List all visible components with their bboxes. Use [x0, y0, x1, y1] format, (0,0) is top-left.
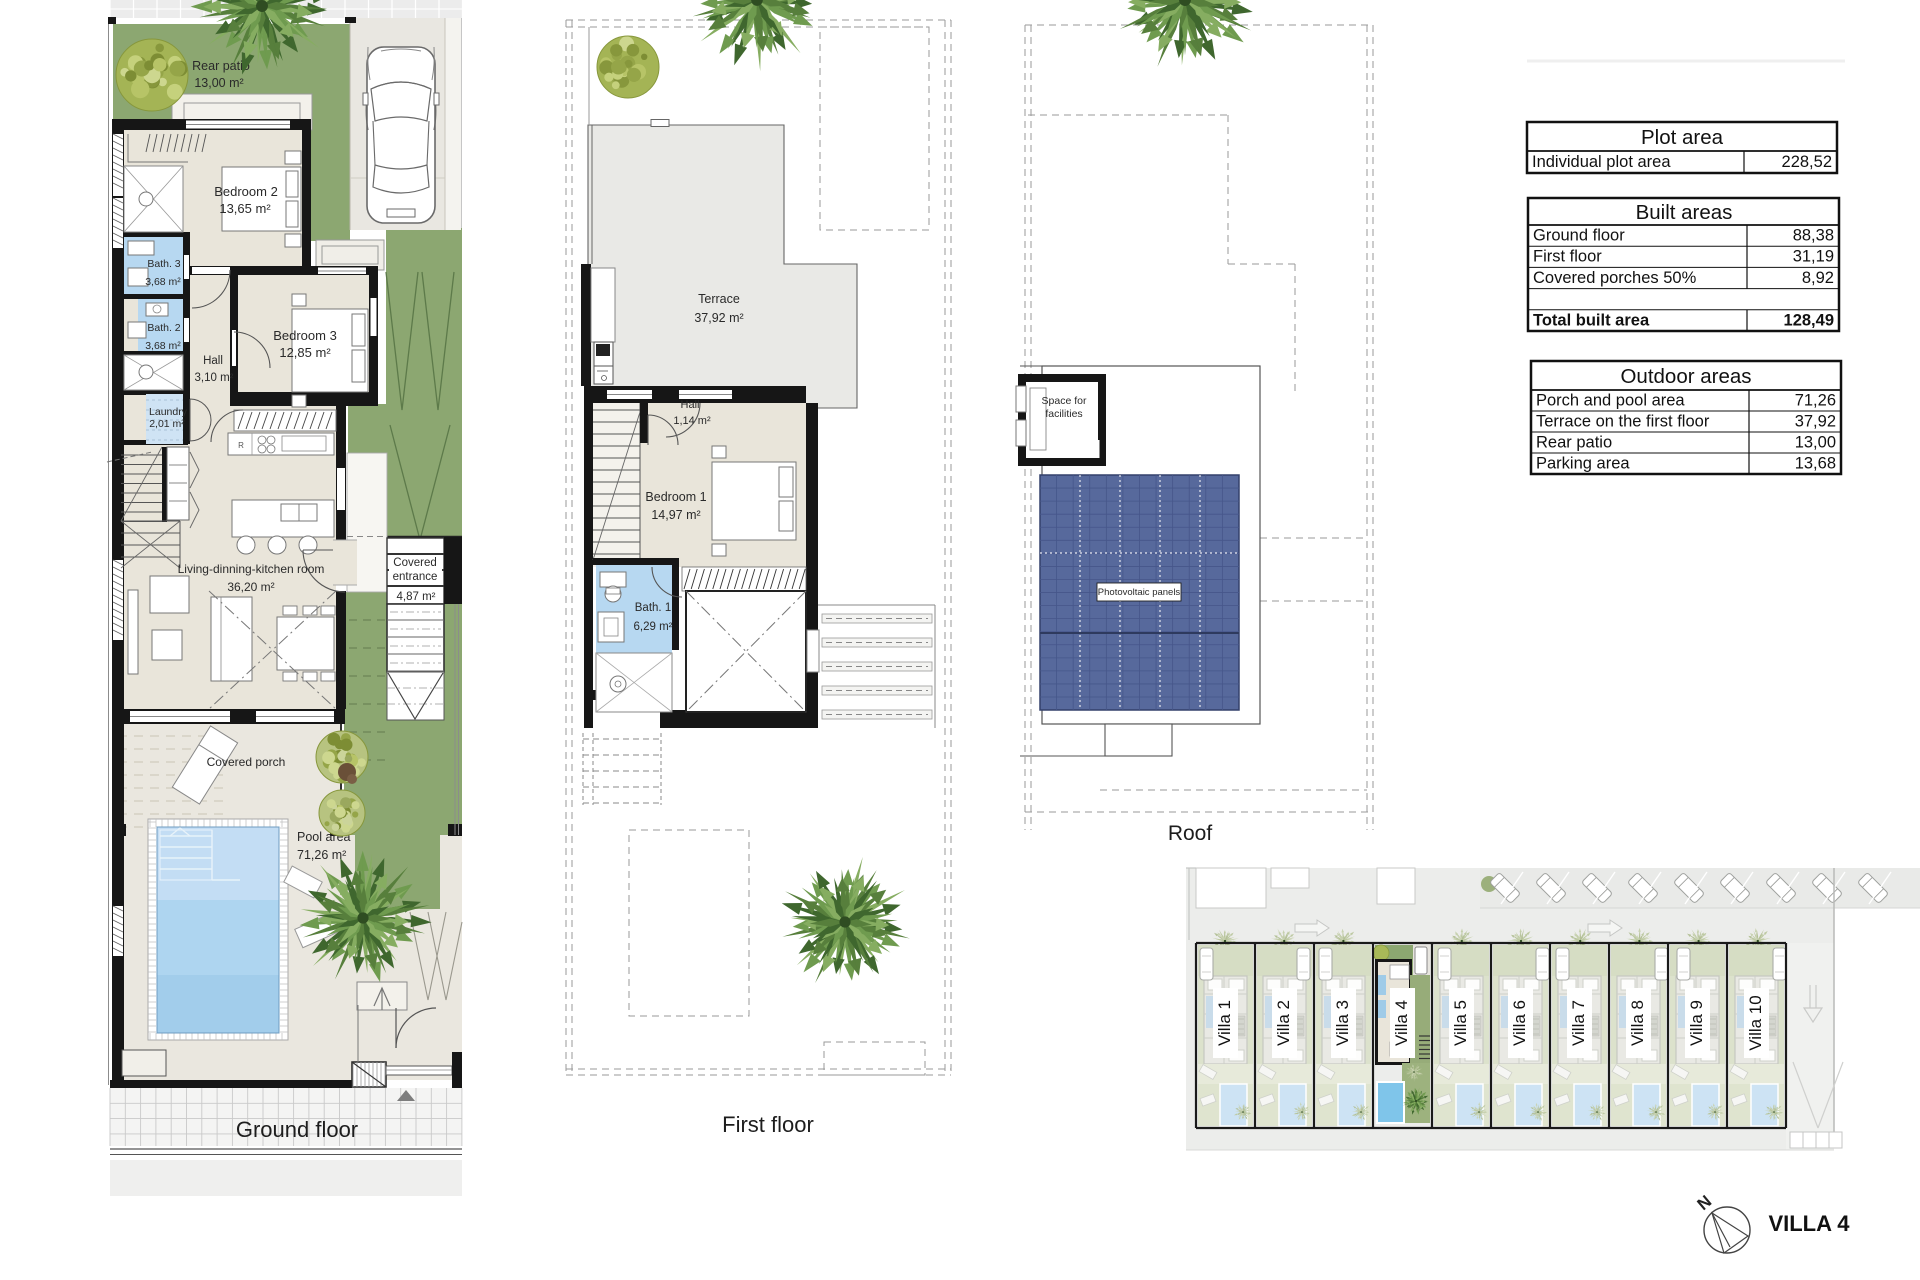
- svg-text:Villa 7: Villa 7: [1569, 1000, 1588, 1046]
- svg-text:Roof: Roof: [1168, 822, 1213, 845]
- svg-text:3,68 m²: 3,68 m²: [145, 340, 181, 352]
- svg-text:31,19: 31,19: [1793, 248, 1834, 266]
- svg-text:entrance: entrance: [393, 571, 438, 583]
- svg-text:Rear patio: Rear patio: [1536, 434, 1612, 452]
- svg-text:Bath. 2: Bath. 2: [147, 322, 180, 334]
- svg-text:13,68: 13,68: [1795, 455, 1836, 473]
- svg-text:2,01 m²: 2,01 m²: [149, 418, 185, 430]
- svg-text:6,29 m²: 6,29 m²: [634, 621, 673, 633]
- svg-text:Hall: Hall: [203, 355, 223, 367]
- svg-text:Space for: Space for: [1042, 395, 1087, 407]
- svg-text:Covered porch: Covered porch: [207, 755, 286, 769]
- svg-text:Bedroom 3: Bedroom 3: [273, 328, 337, 343]
- svg-text:Villa 2: Villa 2: [1274, 1000, 1293, 1046]
- svg-text:8,92: 8,92: [1802, 269, 1834, 287]
- svg-text:First floor: First floor: [1533, 248, 1602, 266]
- svg-text:Laundry: Laundry: [149, 406, 188, 418]
- svg-text:13,00: 13,00: [1795, 434, 1836, 452]
- svg-text:Covered porches 50%: Covered porches 50%: [1533, 269, 1697, 287]
- svg-text:Villa 5: Villa 5: [1451, 1000, 1470, 1046]
- svg-text:Villa 10: Villa 10: [1746, 995, 1765, 1050]
- svg-text:Villa 4: Villa 4: [1392, 1000, 1411, 1046]
- svg-text:3,10 m²: 3,10 m²: [195, 372, 234, 384]
- svg-text:Covered: Covered: [393, 557, 436, 569]
- svg-text:13,00 m²: 13,00 m²: [194, 76, 243, 90]
- svg-text:Villa 3: Villa 3: [1333, 1000, 1352, 1046]
- svg-text:R: R: [238, 441, 244, 450]
- svg-text:Porch and pool area: Porch and pool area: [1536, 392, 1685, 410]
- svg-text:Ground floor: Ground floor: [236, 1117, 358, 1142]
- svg-text:N: N: [1694, 1192, 1716, 1214]
- svg-text:Photovoltaic panels: Photovoltaic panels: [1098, 587, 1181, 598]
- svg-text:Bedroom 1: Bedroom 1: [645, 490, 706, 504]
- svg-text:First floor: First floor: [722, 1112, 814, 1137]
- svg-text:Plot area: Plot area: [1641, 126, 1724, 149]
- svg-text:Outdoor areas: Outdoor areas: [1620, 365, 1751, 388]
- svg-text:Villa 1: Villa 1: [1215, 1000, 1234, 1046]
- svg-text:14,97 m²: 14,97 m²: [651, 508, 700, 522]
- svg-text:36,20 m²: 36,20 m²: [227, 580, 274, 594]
- svg-text:128,49: 128,49: [1784, 311, 1834, 329]
- svg-text:13,65 m²: 13,65 m²: [219, 201, 271, 216]
- svg-text:Bath. 1: Bath. 1: [635, 602, 671, 614]
- svg-text:Villa 8: Villa 8: [1628, 1000, 1647, 1046]
- svg-text:Villa 6: Villa 6: [1510, 1000, 1529, 1046]
- svg-text:Terrace on the first floor: Terrace on the first floor: [1536, 413, 1710, 431]
- svg-text:Bedroom 2: Bedroom 2: [214, 184, 278, 199]
- svg-text:Individual plot area: Individual plot area: [1532, 153, 1671, 171]
- svg-text:37,92 m²: 37,92 m²: [694, 311, 743, 325]
- svg-text:Hall: Hall: [681, 399, 700, 411]
- svg-text:228,52: 228,52: [1782, 153, 1832, 171]
- svg-text:71,26: 71,26: [1795, 392, 1836, 410]
- svg-text:71,26 m²: 71,26 m²: [297, 848, 346, 862]
- svg-text:3,68 m²: 3,68 m²: [145, 276, 181, 288]
- svg-text:4,87 m²: 4,87 m²: [397, 591, 436, 603]
- svg-text:Living-dinning-kitchen room: Living-dinning-kitchen room: [178, 562, 325, 576]
- svg-text:12,85 m²: 12,85 m²: [279, 345, 331, 360]
- svg-text:VILLA 4: VILLA 4: [1768, 1211, 1850, 1236]
- svg-text:Terrace: Terrace: [698, 292, 740, 306]
- svg-text:Ground floor: Ground floor: [1533, 227, 1625, 245]
- svg-text:37,92: 37,92: [1795, 413, 1836, 431]
- svg-text:Built areas: Built areas: [1636, 201, 1733, 224]
- svg-text:Total built area: Total built area: [1533, 311, 1650, 329]
- svg-text:Rear patio: Rear patio: [192, 59, 250, 73]
- svg-text:1,14 m²: 1,14 m²: [673, 415, 711, 427]
- svg-text:Bath. 3: Bath. 3: [147, 258, 180, 270]
- svg-text:Parking area: Parking area: [1536, 455, 1630, 473]
- svg-text:88,38: 88,38: [1793, 227, 1834, 245]
- svg-text:Villa 9: Villa 9: [1687, 1000, 1706, 1046]
- svg-text:facilities: facilities: [1045, 408, 1082, 420]
